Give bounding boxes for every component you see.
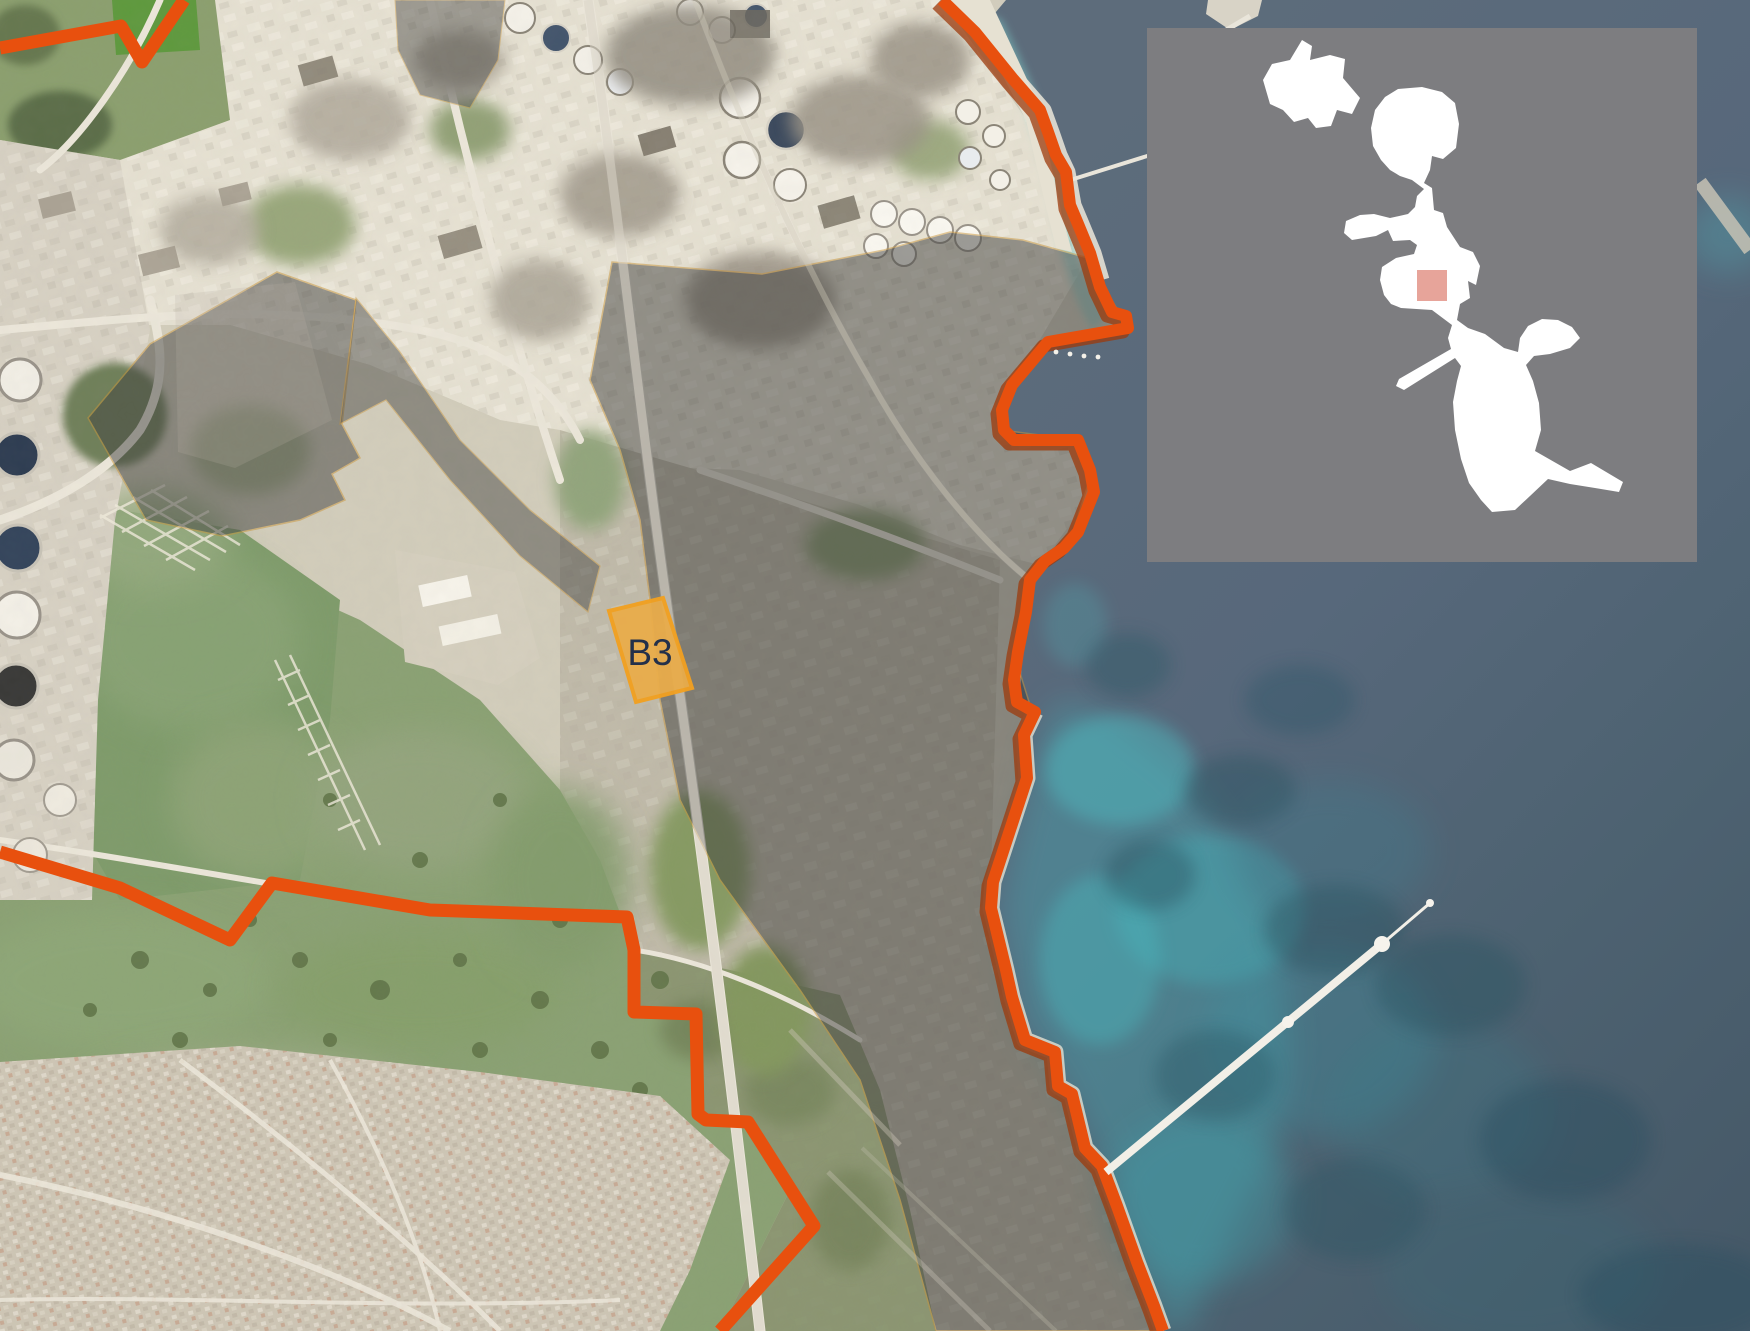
svg-text:B3: B3 (627, 632, 672, 673)
